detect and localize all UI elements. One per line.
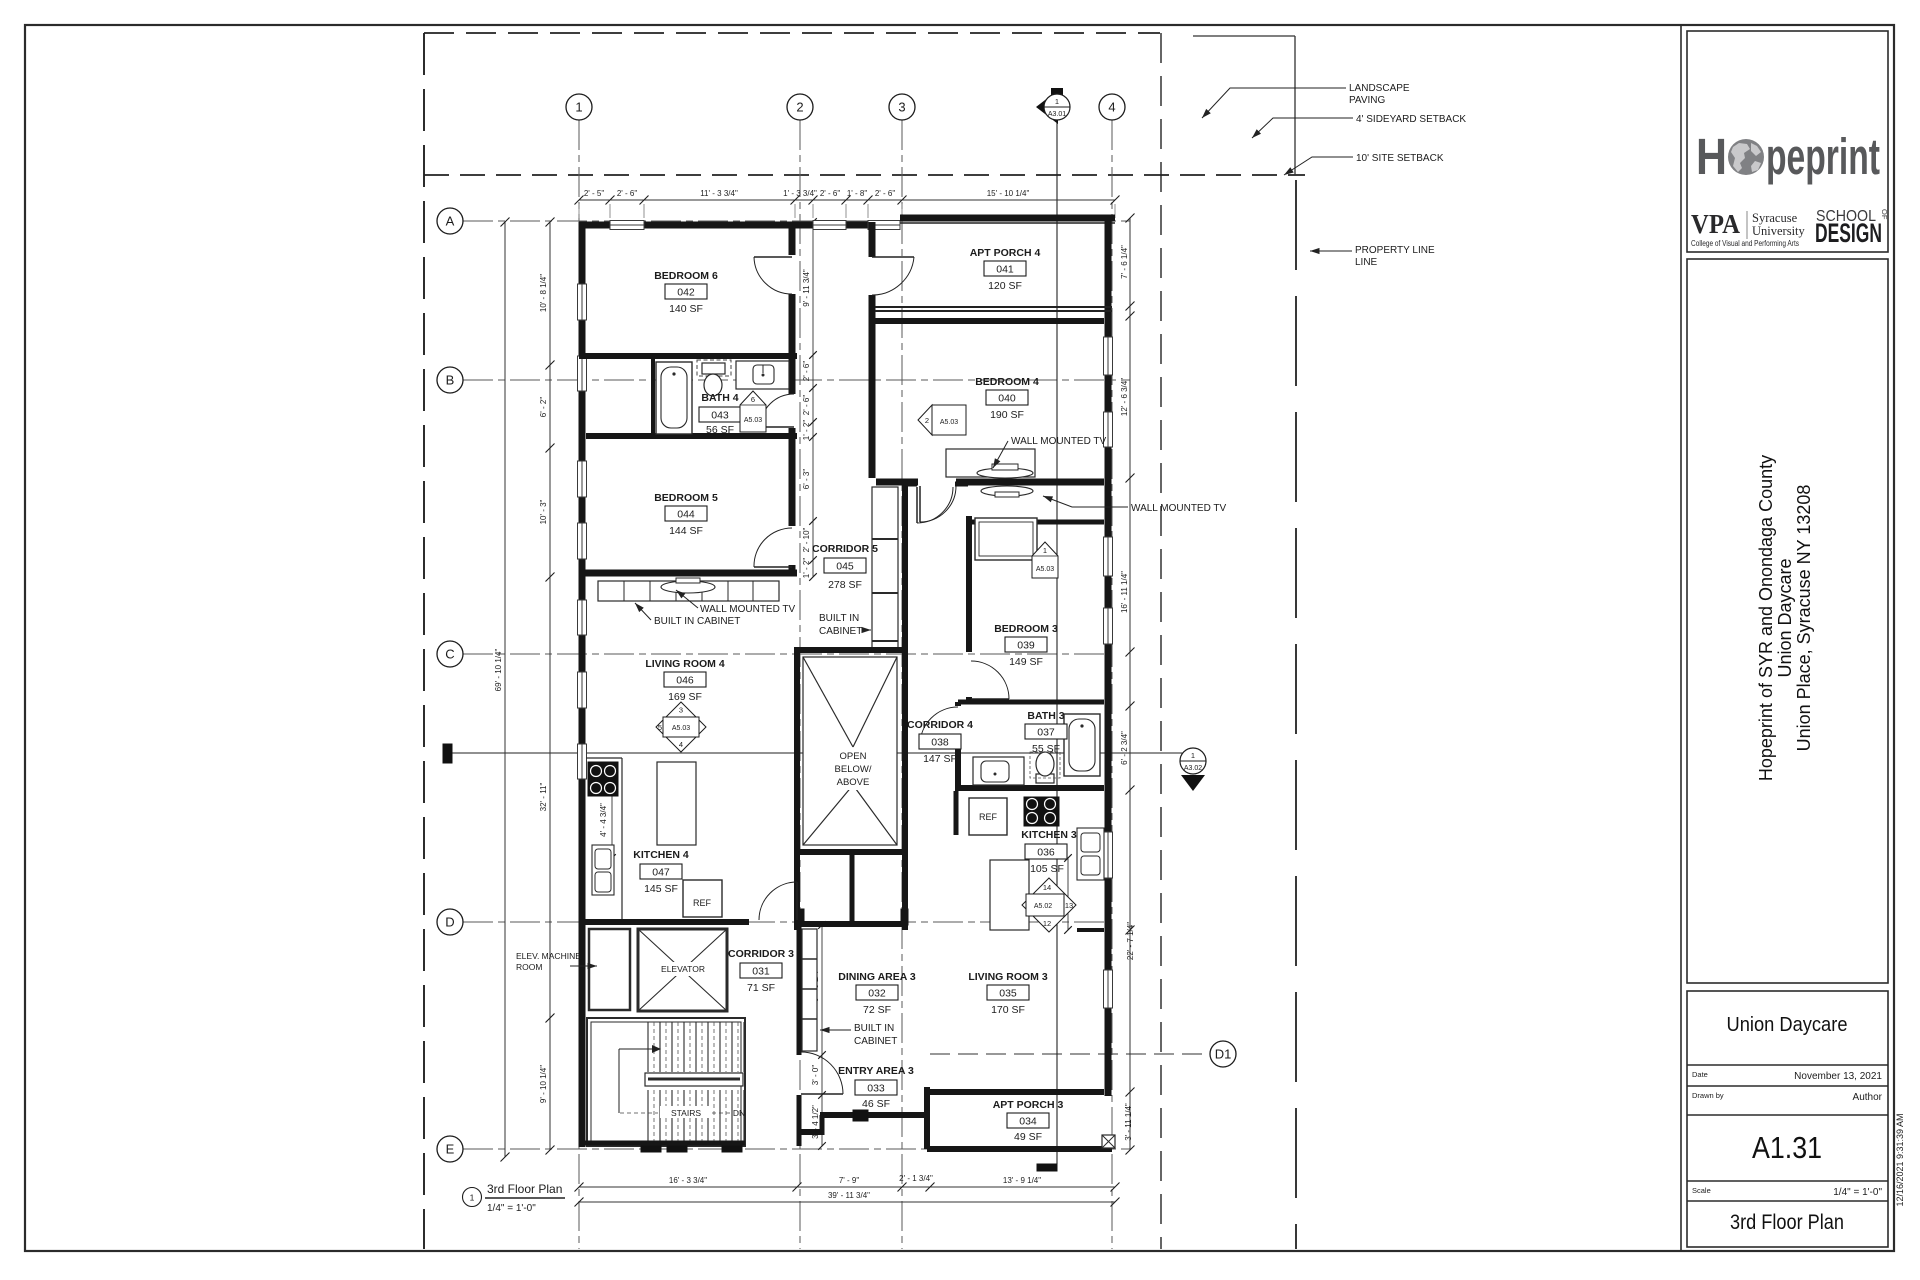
svg-text:5: 5 [658,723,662,732]
svg-text:1/4" = 1'-0": 1/4" = 1'-0" [1833,1187,1882,1198]
svg-text:BATH 4: BATH 4 [701,392,738,404]
svg-text:1' - 8": 1' - 8" [847,189,868,198]
svg-text:A5.02: A5.02 [1034,903,1052,910]
svg-text:LINE: LINE [1355,257,1378,268]
svg-text:3' - 11 1/4": 3' - 11 1/4" [1124,1103,1133,1141]
svg-text:LIVING ROOM 3: LIVING ROOM 3 [968,971,1048,983]
svg-text:1' - 3 3/4": 1' - 3 3/4" [783,189,817,198]
svg-text:034: 034 [1019,1116,1037,1128]
svg-text:044: 044 [677,509,695,521]
svg-text:2: 2 [925,416,929,425]
svg-text:1: 1 [575,100,582,115]
svg-text:Union Place, Syracuse NY 13208: Union Place, Syracuse NY 13208 [1794,485,1814,752]
svg-text:10' - 8 1/4": 10' - 8 1/4" [539,274,548,312]
svg-text:WALL MOUNTED TV: WALL MOUNTED TV [1011,436,1107,447]
svg-text:APT PORCH 3: APT PORCH 3 [993,1099,1064,1111]
svg-text:VPA: VPA [1691,209,1740,239]
svg-text:13' - 9 1/4": 13' - 9 1/4" [1003,1176,1041,1185]
svg-text:7' - 6 1/4": 7' - 6 1/4" [1120,245,1129,279]
svg-text:A5.03: A5.03 [1036,566,1054,573]
svg-text:039: 039 [1017,640,1035,652]
svg-text:170 SF: 170 SF [991,1004,1025,1016]
svg-text:4' SIDEYARD SETBACK: 4' SIDEYARD SETBACK [1356,114,1466,125]
svg-text:71 SF: 71 SF [747,982,775,994]
svg-text:A5.03: A5.03 [940,419,958,426]
svg-text:145 SF: 145 SF [644,883,678,895]
svg-text:Scale: Scale [1692,1186,1711,1195]
svg-text:39' - 11 3/4": 39' - 11 3/4" [828,1191,870,1200]
svg-text:Syracuse: Syracuse [1752,211,1798,225]
svg-text:3rd Floor Plan: 3rd Floor Plan [487,1182,562,1196]
svg-text:2' - 6": 2' - 6" [802,361,811,382]
svg-text:A: A [446,214,455,229]
svg-text:BEDROOM 5: BEDROOM 5 [654,492,718,504]
svg-text:CORRIDOR 4: CORRIDOR 4 [907,719,973,731]
svg-text:DESIGN: DESIGN [1815,218,1882,248]
svg-text:4' - 4 3/4": 4' - 4 3/4" [599,803,608,837]
svg-text:22' - 7 1/4": 22' - 7 1/4" [1126,922,1135,960]
svg-text:032: 032 [868,988,886,1000]
svg-text:University: University [1752,224,1806,238]
svg-text:2' - 6": 2' - 6" [617,189,638,198]
svg-text:4: 4 [679,740,683,749]
svg-text:14: 14 [1043,883,1051,892]
svg-text:C: C [445,647,454,662]
svg-text:047: 047 [652,867,670,879]
svg-text:2' - 10": 2' - 10" [802,527,811,552]
svg-text:12/16/2021 9:31:39 AM: 12/16/2021 9:31:39 AM [1895,1113,1905,1206]
svg-text:Drawn by: Drawn by [1692,1091,1724,1100]
svg-text:4: 4 [1108,100,1115,115]
svg-text:9' - 10 1/4": 9' - 10 1/4" [539,1065,548,1103]
svg-text:12' - 6 3/4": 12' - 6 3/4" [1120,378,1129,416]
svg-text:1: 1 [1043,546,1047,555]
svg-text:A5.03: A5.03 [672,725,690,732]
svg-text:190 SF: 190 SF [990,409,1024,421]
svg-text:32' - 11": 32' - 11" [539,783,548,812]
svg-text:147 SF: 147 SF [923,753,957,765]
svg-text:036: 036 [1037,847,1055,859]
svg-text:035: 035 [999,988,1017,1000]
svg-text:56 SF: 56 SF [706,424,734,436]
svg-text:KITCHEN 3: KITCHEN 3 [1021,829,1077,841]
svg-text:2' - 1 3/4": 2' - 1 3/4" [899,1174,933,1183]
svg-text:BEDROOM 3: BEDROOM 3 [994,623,1058,635]
svg-text:PAVING: PAVING [1349,95,1386,106]
svg-text:3: 3 [898,100,905,115]
svg-text:WALL MOUNTED TV: WALL MOUNTED TV [1131,503,1227,514]
svg-text:16' - 3 3/4": 16' - 3 3/4" [669,1176,707,1185]
svg-text:9' - 11 3/4": 9' - 11 3/4" [802,269,811,307]
svg-text:040: 040 [998,393,1016,405]
svg-text:LANDSCAPE: LANDSCAPE [1349,83,1410,94]
svg-text:BUILT IN: BUILT IN [854,1023,894,1034]
svg-text:Date: Date [1692,1070,1708,1079]
svg-text:November 13, 2021: November 13, 2021 [1794,1071,1882,1082]
svg-text:BEDROOM 4: BEDROOM 4 [975,376,1039,388]
svg-text:CORRIDOR 5: CORRIDOR 5 [812,543,878,555]
svg-text:1' - 2": 1' - 2" [802,558,811,579]
svg-text:49 SF: 49 SF [1014,1131,1042,1143]
svg-text:037: 037 [1037,727,1055,739]
svg-text:BUILT IN CABINET: BUILT IN CABINET [654,616,740,627]
svg-text:1: 1 [1191,751,1195,760]
svg-text:Union Daycare: Union Daycare [1775,558,1795,677]
svg-text:043: 043 [711,410,729,422]
svg-text:A3.02: A3.02 [1184,765,1202,772]
svg-text:D: D [445,915,454,930]
svg-text:13: 13 [1065,901,1073,910]
svg-text:BELOW/: BELOW/ [835,764,872,775]
svg-text:7' - 9": 7' - 9" [839,1176,860,1185]
svg-text:120 SF: 120 SF [988,280,1022,292]
svg-text:144 SF: 144 SF [669,525,703,537]
svg-text:3' - 0": 3' - 0" [811,1065,820,1086]
svg-text:A5.03: A5.03 [744,417,762,424]
svg-text:A1.31: A1.31 [1752,1130,1822,1165]
svg-text:169 SF: 169 SF [668,691,702,703]
svg-text:72 SF: 72 SF [863,1004,891,1016]
svg-text:PROPERTY LINE: PROPERTY LINE [1355,245,1435,256]
svg-text:E: E [446,1142,455,1157]
svg-text:140 SF: 140 SF [669,303,703,315]
svg-text:6' - 3": 6' - 3" [802,469,811,490]
svg-text:2: 2 [796,100,803,115]
svg-text:APT PORCH 4: APT PORCH 4 [970,247,1041,259]
svg-text:10' SITE SETBACK: 10' SITE SETBACK [1356,153,1444,164]
svg-text:2' - 6": 2' - 6" [802,395,811,416]
svg-text:1/4" = 1'-0": 1/4" = 1'-0" [487,1203,536,1214]
svg-text:042: 042 [677,287,695,299]
svg-text:149 SF: 149 SF [1009,656,1043,668]
svg-text:69' - 10 1/4": 69' - 10 1/4" [494,649,503,692]
svg-text:16' - 11 1/4": 16' - 11 1/4" [1120,571,1129,613]
svg-text:ROOM: ROOM [516,962,542,972]
svg-text:1: 1 [470,1193,475,1203]
svg-text:A3.01: A3.01 [1048,111,1066,118]
svg-text:DINING AREA 3: DINING AREA 3 [838,971,916,983]
svg-text:045: 045 [836,561,854,573]
svg-text:Union Daycare: Union Daycare [1727,1014,1848,1036]
svg-text:15' - 10 1/4": 15' - 10 1/4" [987,189,1030,198]
svg-text:6' - 2": 6' - 2" [539,397,548,418]
svg-text:KITCHEN 4: KITCHEN 4 [633,849,689,861]
svg-text:2' - 6": 2' - 6" [875,189,896,198]
svg-text:Hopeprint of SYR and Onondaga: Hopeprint of SYR and Onondaga County [1756,455,1776,781]
svg-text:046: 046 [676,675,694,687]
svg-text:46 SF: 46 SF [862,1098,890,1110]
svg-text:REF: REF [693,898,712,908]
svg-text:WALL MOUNTED TV: WALL MOUNTED TV [700,604,796,615]
svg-text:LIVING ROOM 4: LIVING ROOM 4 [645,658,725,670]
svg-text:DN: DN [733,1108,745,1118]
svg-text:CORRIDOR 3: CORRIDOR 3 [728,948,794,960]
svg-text:10' - 3": 10' - 3" [539,499,548,524]
svg-text:REF: REF [979,812,998,822]
svg-text:peprint: peprint [1766,128,1880,185]
svg-text:Author: Author [1853,1092,1883,1103]
svg-text:55 SF: 55 SF [1032,743,1060,755]
svg-text:3rd Floor Plan: 3rd Floor Plan [1730,1211,1844,1234]
svg-text:STAIRS: STAIRS [671,1108,701,1118]
svg-text:B: B [446,373,455,388]
svg-text:278 SF: 278 SF [828,579,862,591]
svg-text:BEDROOM 6: BEDROOM 6 [654,270,718,282]
svg-text:11' - 3 3/4": 11' - 3 3/4" [700,189,738,198]
svg-text:H: H [1696,128,1727,185]
svg-text:12: 12 [1043,919,1051,928]
svg-text:OPEN: OPEN [840,751,867,762]
svg-text:CABINET: CABINET [854,1036,897,1047]
svg-text:1: 1 [1055,97,1059,106]
svg-text:D1: D1 [1215,1047,1232,1062]
svg-text:6: 6 [751,395,755,404]
svg-text:BATH 3: BATH 3 [1027,710,1064,722]
svg-text:ELEV. MACHINE: ELEV. MACHINE [516,951,581,961]
svg-text:ELEVATOR: ELEVATOR [661,964,705,974]
svg-text:2' - 5": 2' - 5" [584,189,605,198]
svg-text:ABOVE: ABOVE [837,777,870,788]
svg-text:038: 038 [931,737,949,749]
svg-text:2' - 6": 2' - 6" [820,189,841,198]
svg-text:CABINET: CABINET [819,626,862,637]
svg-text:1' - 2": 1' - 2" [802,420,811,441]
svg-text:031: 031 [752,966,770,978]
svg-text:041: 041 [996,264,1014,276]
svg-text:BUILT IN: BUILT IN [819,613,859,624]
svg-text:105 SF: 105 SF [1030,863,1064,875]
svg-text:ENTRY AREA 3: ENTRY AREA 3 [838,1065,914,1077]
svg-text:3: 3 [679,706,683,715]
svg-text:6' - 2 3/4": 6' - 2 3/4" [1120,731,1129,765]
svg-text:033: 033 [867,1083,885,1095]
svg-text:College of Visual and Performi: College of Visual and Performing Arts [1691,239,1799,248]
